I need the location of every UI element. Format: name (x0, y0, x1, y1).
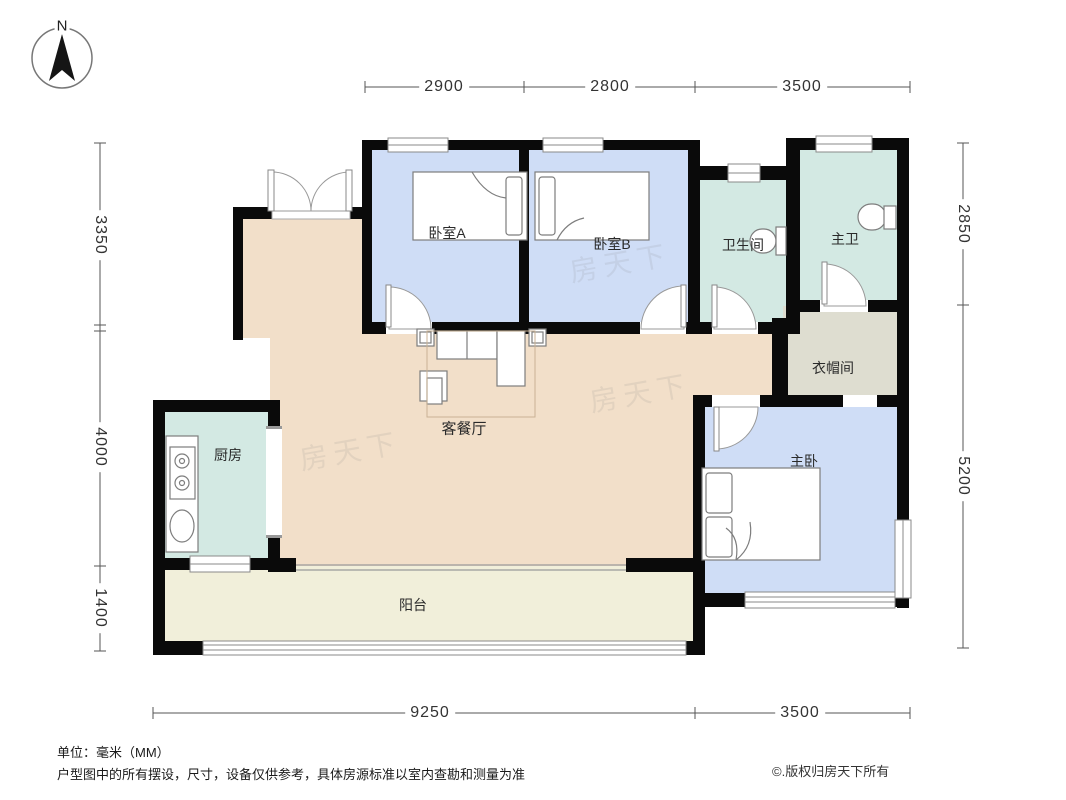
window-bathroom (728, 164, 760, 182)
dim-label-top-3: 3500 (777, 78, 827, 96)
room-label-balcony: 阳台 (399, 595, 427, 615)
room-fill-cloakroom (783, 306, 903, 402)
side-table (532, 332, 543, 343)
wall-segment (153, 641, 203, 655)
wall-segment (688, 140, 700, 334)
dim-label-right-2: 5200 (954, 451, 972, 501)
wall-segment (268, 558, 296, 572)
kitchen-counter (166, 436, 198, 552)
room-label-bedroom-a: 卧室A (428, 223, 465, 243)
wall-segment (153, 400, 280, 412)
kitchen-opening-jamb (266, 535, 282, 538)
wall-segment (362, 140, 372, 334)
compass-needle-icon (49, 34, 75, 81)
window-bedroom-b (543, 138, 603, 152)
wall-segment (350, 207, 368, 219)
kitchen-opening-jamb (266, 426, 282, 429)
kitchen-opening (266, 426, 282, 538)
dim-label-bottom-2: 3500 (775, 704, 825, 722)
window-bedroom-a (388, 138, 448, 152)
window-master-bath (816, 136, 872, 152)
north-compass (32, 28, 92, 88)
footer-unit: 单位：毫米（MM） (57, 742, 170, 761)
footer-copyright: ©.版权归房天下所有 (772, 761, 889, 780)
stove (170, 447, 195, 499)
toilet-master-bath (858, 204, 896, 230)
wall-segment (686, 641, 704, 655)
wall-segment (233, 207, 243, 340)
master-bed (702, 468, 820, 560)
room-label-master-bedroom: 主卧 (790, 451, 818, 471)
bed-b (535, 172, 649, 240)
floorplan-page: N 房天下 房天下 房天下 卧室A 卧室B 卫生间 主卫 衣帽间 主卧 客餐厅 … (0, 0, 1066, 800)
compass-label: N (55, 18, 70, 35)
room-label-cloakroom: 衣帽间 (812, 358, 854, 378)
wall-segment (626, 558, 696, 572)
dim-label-top-2: 2800 (585, 78, 635, 96)
cloakroom-opening (843, 395, 877, 407)
dim-label-bottom-1: 9250 (405, 704, 455, 722)
room-label-master-bath: 主卫 (831, 229, 859, 249)
room-label-bathroom: 卫生间 (722, 235, 764, 255)
wall-segment (772, 318, 788, 407)
dim-label-top-1: 2900 (419, 78, 469, 96)
entry-double-door (268, 170, 352, 219)
side-table (420, 332, 431, 343)
dim-label-right-1: 2850 (954, 199, 972, 249)
window-kitchen (190, 556, 250, 572)
wall-segment (153, 400, 165, 655)
dim-label-left-1: 3350 (91, 210, 109, 260)
window-master-bedroom-bottom (745, 592, 895, 608)
room-label-living-dining: 客餐厅 (441, 418, 486, 439)
room-label-bedroom-b: 卧室B (593, 234, 630, 254)
room-fill-balcony (160, 566, 700, 652)
window-master-bedroom-right (895, 520, 911, 598)
window-balcony (203, 641, 686, 655)
dim-label-left-3: 1400 (91, 583, 109, 633)
room-label-kitchen: 厨房 (214, 445, 242, 465)
tv-stand (420, 371, 447, 404)
dim-label-left-2: 4000 (91, 422, 109, 472)
footer-disclaimer: 户型图中的所有摆设，尺寸，设备仅供参考，具体房源标准以室内查勘和测量为准 (57, 764, 525, 783)
floorplan-drawing (0, 0, 1066, 800)
